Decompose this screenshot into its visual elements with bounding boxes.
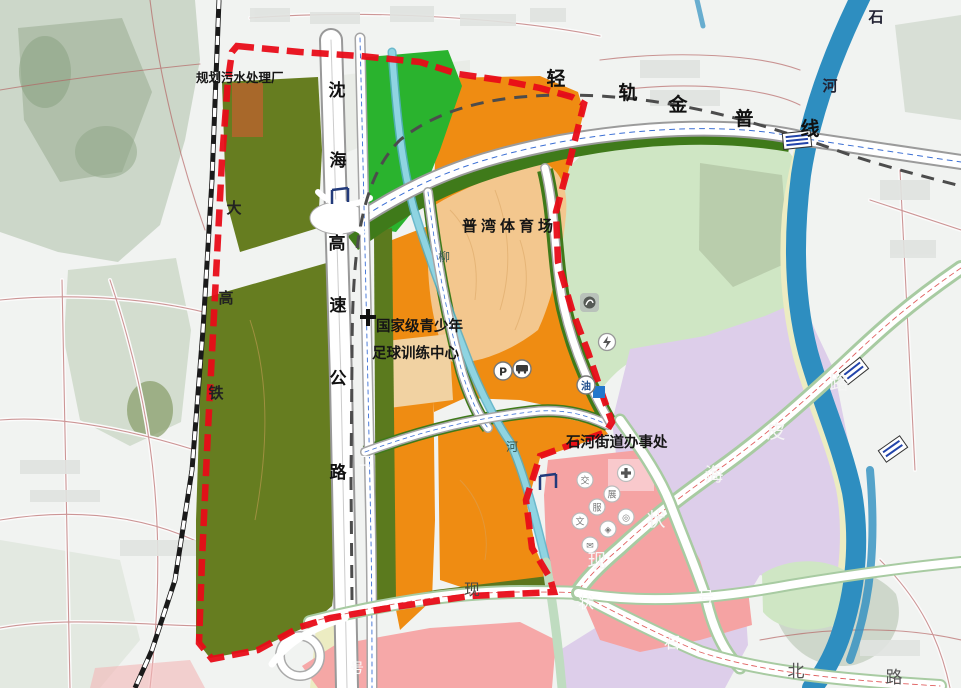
char-xian3: 现 (464, 580, 480, 599)
bus-stop-icon (513, 360, 531, 378)
char-shi2: 石 (664, 633, 680, 652)
zone-olive-main (196, 262, 338, 658)
char-gong: 公 (330, 369, 347, 389)
char-lu: 路 (330, 462, 348, 483)
facility-glyph-fu: 服 (592, 503, 601, 514)
char-gao2: 高 (218, 289, 233, 307)
char-lu3: 路 (886, 668, 903, 688)
map-canvas: P 油 交 展 (0, 0, 961, 688)
facility-glyph-wen: 文 (575, 516, 584, 528)
gas-station-icon: 油 (577, 376, 595, 394)
char-shi-river: 石 (867, 8, 883, 26)
svg-text:油: 油 (581, 380, 591, 393)
char-lu2: 路 (829, 372, 848, 394)
char-zhuang2: 状 (578, 593, 594, 612)
char-gui: 轨 (618, 81, 637, 104)
label-sewage-plant: 规划污水处理厂 (196, 70, 284, 85)
char-qing: 轻 (546, 67, 565, 90)
zone-sewage-plant-site (232, 83, 263, 137)
char-hao2: 号 (698, 588, 714, 607)
char-he-stream: 河 (506, 440, 518, 454)
char-shen: 沈 (329, 80, 346, 101)
char-er: 二 (359, 454, 373, 470)
label-stadium: 普湾体育场 (462, 217, 557, 235)
label-training-center-2: 足球训练中心 (372, 344, 459, 362)
label-training-center-1: 国家级青少年 (376, 317, 463, 335)
char-pu: 普 (734, 107, 753, 130)
char-su: 速 (330, 295, 347, 316)
char-gao: 高 (329, 233, 346, 254)
char-liu: 柳 (438, 250, 450, 264)
badge-icon: ◈ (605, 526, 612, 536)
char-hao-v: 号 (350, 661, 364, 677)
facility-glyph-zhan: 展 (607, 490, 616, 501)
metro-station-icon (580, 293, 599, 312)
char-he-river: 河 (822, 77, 837, 95)
char-zhuang: 状 (646, 509, 665, 531)
char-pi: 皮 (766, 421, 785, 443)
char-xian: 线 (800, 117, 819, 140)
svg-text:P: P (499, 366, 507, 379)
char-hai2: 海 (704, 464, 723, 486)
label-subdistrict-office: 石河街道办事处 (565, 433, 668, 451)
char-bei: 北 (788, 662, 805, 682)
char-tie: 铁 (208, 384, 223, 402)
parking-icon: P (494, 362, 512, 380)
char-xian2: 现 (587, 550, 606, 572)
char-da: 大 (226, 199, 241, 217)
media-icon: ◎ (622, 514, 630, 524)
planning-map: P 油 交 展 (0, 0, 961, 688)
facility-glyph-jiao: 交 (580, 475, 589, 487)
char-hai: 海 (330, 150, 347, 171)
char-jin: 金 (667, 93, 688, 116)
power-substation-icon (599, 334, 616, 351)
